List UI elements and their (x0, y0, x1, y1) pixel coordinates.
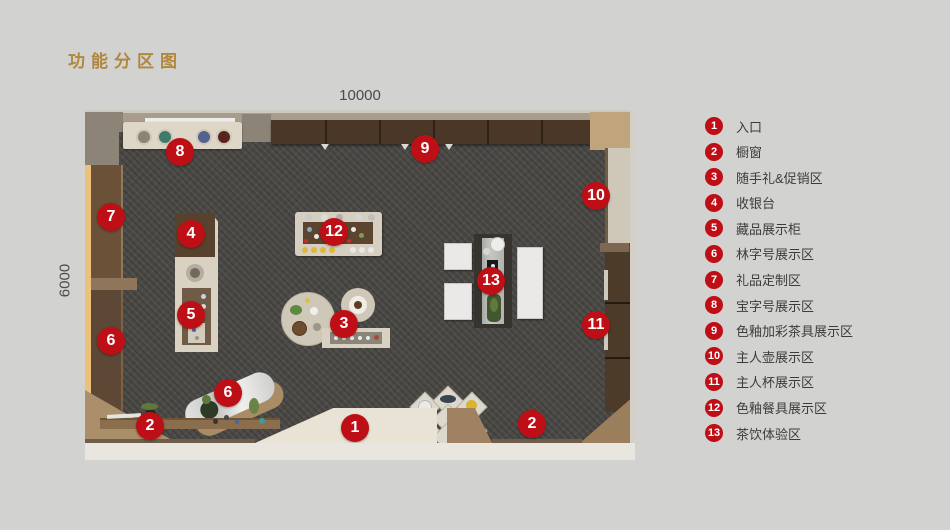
plan-marker-9: 9 (411, 135, 439, 163)
legend-item-8: 8宝字号展示区 (705, 296, 853, 314)
floor-plan: 8974121053136116212 (85, 110, 635, 443)
display-item (201, 294, 206, 299)
display-item (259, 418, 265, 424)
legend-item-6: 6林字号展示区 (705, 245, 853, 263)
sidewalk-exterior (85, 443, 635, 460)
vase-icon (196, 129, 212, 145)
legend-item-12: 12色釉餐具展示区 (705, 399, 853, 417)
legend-label: 色釉加彩茶具展示区 (736, 321, 853, 340)
legend-item-1: 1入口 (705, 117, 853, 135)
legend-marker-badge: 8 (705, 296, 723, 314)
cabinet-divider (487, 120, 489, 144)
bowl-icon (311, 247, 317, 253)
legend-label: 主人壶展示区 (736, 347, 814, 366)
legend-marker-badge: 13 (705, 424, 723, 442)
plan-marker-5: 5 (177, 301, 205, 329)
bowl-icon (359, 233, 364, 238)
cup-icon (366, 336, 370, 340)
cup-icon (310, 307, 318, 315)
cup-icon (358, 336, 362, 340)
cabinet-divider (91, 278, 137, 290)
tea-bench (444, 283, 472, 320)
display-item (213, 419, 218, 424)
plate-icon (440, 395, 456, 403)
tea-bench (444, 243, 472, 270)
legend-item-4: 4收银台 (705, 194, 853, 212)
cup-icon (374, 335, 379, 340)
display-item (195, 336, 199, 340)
bowl-icon (302, 247, 308, 253)
bowl-icon (320, 247, 326, 253)
vase-icon (136, 129, 152, 145)
legend-marker-badge: 10 (705, 347, 723, 365)
plate-icon (305, 214, 312, 221)
bottom-wall-edge (85, 439, 255, 443)
bowl-icon (304, 239, 308, 243)
legend-label: 主人杯展示区 (736, 372, 814, 391)
legend-marker-badge: 3 (705, 168, 723, 186)
plate-icon (355, 214, 362, 221)
leaf-dish-icon (290, 305, 302, 315)
plant-icon (141, 403, 158, 410)
plan-marker-1: 1 (341, 414, 369, 442)
plan-marker-12: 12 (320, 218, 348, 246)
bowl-icon (329, 247, 335, 253)
vase-icon (216, 129, 232, 145)
plant-icon (487, 294, 501, 322)
legend-label: 礼品定制区 (736, 270, 801, 289)
cabinet-divider (605, 357, 630, 359)
kettle-icon (490, 237, 505, 252)
bowl-icon (307, 227, 312, 232)
legend-item-13: 13茶饮体验区 (705, 424, 853, 442)
plan-marker-4: 4 (177, 220, 205, 248)
plan-marker-13: 13 (477, 267, 505, 295)
cup-icon (305, 298, 310, 303)
plate-icon (368, 214, 375, 221)
legend-label: 林字号展示区 (736, 244, 814, 263)
legend-label: 茶饮体验区 (736, 424, 801, 443)
bowl-icon (347, 239, 351, 243)
plan-marker-6: 6 (97, 327, 125, 355)
pendant-light-icon (401, 144, 409, 150)
page-title: 功能分区图 (68, 47, 183, 72)
bowl-icon (368, 247, 374, 253)
bowl-icon (350, 247, 356, 253)
plan-marker-3: 3 (330, 310, 358, 338)
tea-bench (517, 247, 543, 319)
legend-label: 色釉餐具展示区 (736, 398, 827, 417)
cup-icon (350, 336, 354, 340)
legend-marker-badge: 1 (705, 117, 723, 135)
left-wall (85, 122, 119, 165)
pendant-light-icon (445, 144, 453, 150)
plan-marker-7: 7 (97, 203, 125, 231)
top-wall-edge (85, 110, 635, 113)
cabinet-divider (541, 120, 543, 144)
legend-item-5: 5藏品展示柜 (705, 219, 853, 237)
cabinet-cap (600, 243, 629, 252)
legend-label: 橱窗 (736, 142, 762, 161)
display-window-shelf (100, 418, 280, 429)
plant-icon (249, 398, 259, 414)
cabinet-divider (325, 120, 327, 144)
plan-marker-8: 8 (166, 138, 194, 166)
cup-icon (483, 248, 490, 255)
dimension-height-label: 6000 (57, 256, 74, 306)
cabinet-divider (379, 120, 381, 144)
legend: 1入口2橱窗3随手礼&促销区4收银台5藏品展示柜6林字号展示区7礼品定制区8宝字… (705, 117, 853, 450)
plan-marker-11: 11 (582, 311, 610, 339)
legend-marker-badge: 12 (705, 399, 723, 417)
bowl-icon (292, 321, 307, 336)
legend-label: 藏品展示柜 (736, 219, 801, 238)
pendant-light-icon (321, 144, 329, 150)
wall-pillar (242, 114, 271, 142)
legend-marker-badge: 7 (705, 271, 723, 289)
plan-marker-10: 10 (582, 182, 610, 210)
bottom-wall-edge (492, 439, 582, 443)
right-exterior-wall (630, 110, 635, 443)
legend-item-10: 10主人壶展示区 (705, 347, 853, 365)
legend-marker-badge: 2 (705, 143, 723, 161)
legend-item-7: 7礼品定制区 (705, 271, 853, 289)
legend-marker-badge: 5 (705, 219, 723, 237)
legend-marker-badge: 11 (705, 373, 723, 391)
plan-marker-2: 2 (136, 412, 164, 440)
cabinet-shelf-light (604, 270, 608, 300)
cup-icon (313, 323, 321, 331)
legend-item-2: 2橱窗 (705, 143, 853, 161)
display-item (224, 415, 229, 420)
legend-marker-badge: 6 (705, 245, 723, 263)
bowl-icon (351, 227, 356, 232)
corner-wood-top-right (590, 112, 630, 150)
legend-label: 收银台 (736, 193, 775, 212)
display-stool (186, 264, 204, 282)
legend-marker-badge: 4 (705, 194, 723, 212)
legend-item-9: 9色釉加彩茶具展示区 (705, 322, 853, 340)
plan-marker-6: 6 (214, 379, 242, 407)
bowl-icon (359, 247, 365, 253)
plan-marker-2: 2 (518, 410, 546, 438)
display-item (235, 420, 239, 424)
legend-label: 入口 (736, 117, 762, 136)
legend-item-3: 3随手礼&促销区 (705, 168, 853, 186)
bowl-icon (314, 234, 319, 239)
legend-label: 随手礼&促销区 (736, 168, 823, 187)
legend-marker-badge: 9 (705, 322, 723, 340)
cabinet-divider (605, 302, 630, 304)
legend-item-11: 11主人杯展示区 (705, 373, 853, 391)
dimension-width-label: 10000 (85, 87, 635, 104)
legend-label: 宝字号展示区 (736, 296, 814, 315)
